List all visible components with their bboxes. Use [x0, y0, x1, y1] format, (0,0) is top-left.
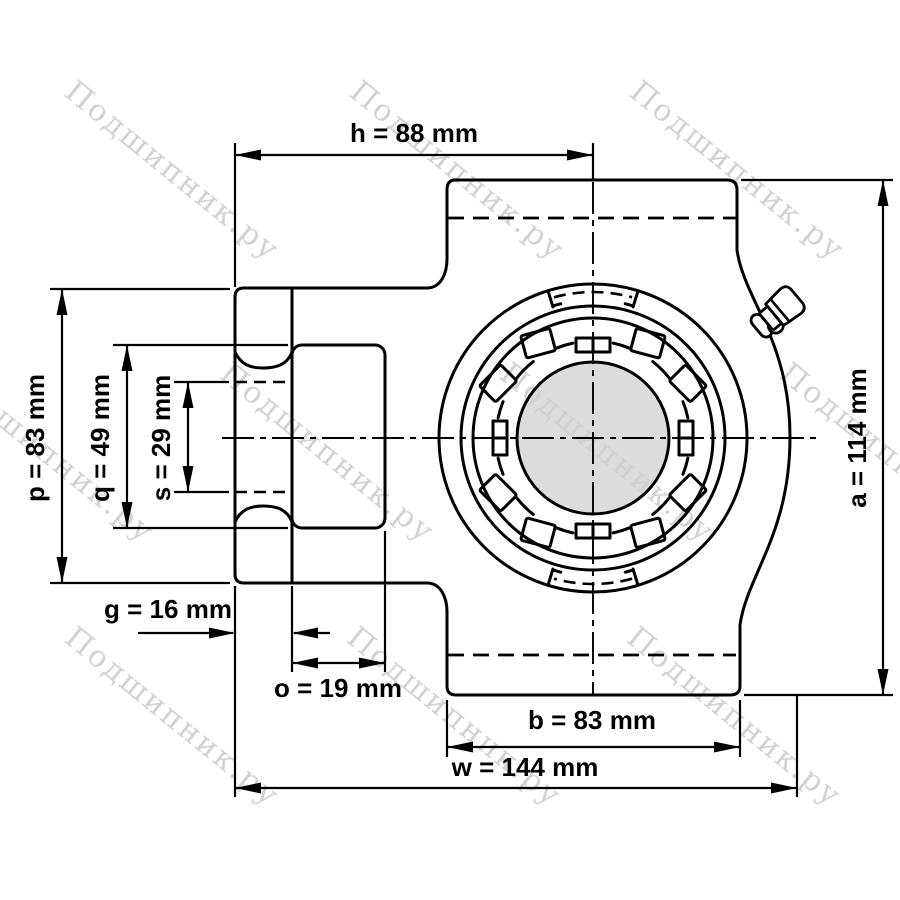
dimension-arrowhead	[122, 345, 133, 371]
arc-slot-end-step	[625, 570, 633, 572]
locknut-tab-rect	[630, 328, 665, 358]
locknut-tab-rect	[521, 518, 556, 548]
arc-slot-end-step	[553, 304, 561, 306]
dimension-arrowhead	[878, 669, 889, 695]
locknut-arc-segment	[613, 528, 629, 533]
arc-slot-end-wall	[633, 291, 638, 307]
dimension-label-w: w = 144 mm	[451, 752, 599, 782]
dimension-label-s: s = 29 mm	[146, 375, 176, 501]
arc-slot-end-wall	[548, 569, 553, 585]
locknut-arc-segment	[557, 343, 573, 348]
bearing-unit-drawing: Подшипник.руПодшипник.руПодшипник.руПодш…	[0, 0, 900, 900]
technical-drawing-page: Подшипник.руПодшипник.руПодшипник.руПодш…	[0, 0, 900, 900]
locknut-arc-segment	[613, 343, 629, 348]
locknut-arc-segment	[557, 528, 573, 533]
dimension-label-b: b = 83 mm	[528, 705, 656, 735]
dimension-arrowhead	[292, 658, 318, 669]
grease-fitting	[747, 284, 808, 342]
locknut-tab-rect	[521, 328, 556, 358]
dimension-label-o: o = 19 mm	[274, 673, 402, 703]
locknut-arc-segment	[683, 458, 688, 474]
dimension-label-g: g = 16 mm	[104, 594, 232, 624]
rail-slot-bottom	[235, 506, 292, 522]
locknut-tab-rect	[630, 518, 665, 548]
locknut-arc-segment	[653, 362, 670, 379]
locknut-arc-segment	[498, 458, 503, 474]
dimension-arrowhead	[292, 628, 318, 639]
dimension-arrowhead	[183, 382, 194, 408]
arc-slot-end-wall	[548, 291, 553, 307]
dimension-arrowhead	[57, 289, 68, 315]
dimension-label-h: h = 88 mm	[350, 118, 478, 148]
dimension-label-p: p = 83 mm	[20, 374, 50, 502]
dimension-arrowhead	[183, 466, 194, 492]
watermark-layer: Подшипник.руПодшипник.руПодшипник.руПодш…	[0, 74, 900, 814]
arc-slot-end-step	[625, 304, 633, 306]
locknut-arc-segment	[517, 498, 534, 515]
dimension-arrowhead	[714, 742, 740, 753]
watermark-text: Подшипник.ру	[58, 74, 287, 268]
dimension-arrowhead	[57, 557, 68, 583]
dimension-label-a: a = 114 mm	[842, 368, 872, 508]
watermark-text: Подшипник.ру	[773, 356, 900, 550]
dimension-arrowhead	[235, 150, 261, 161]
dimension-arrowhead	[878, 180, 889, 206]
dimension-label-q: q = 49 mm	[85, 374, 115, 502]
dimension-arrowhead	[567, 150, 593, 161]
locknut-arc-segment	[683, 402, 688, 418]
locknut-arc-segment	[498, 402, 503, 418]
watermark-text: Подшипник.ру	[343, 74, 572, 268]
watermark-text: Подшипник.ру	[213, 356, 442, 550]
arc-slot-end-step	[553, 570, 561, 572]
arc-slot-end-wall	[633, 569, 638, 585]
dimension-arrowhead	[209, 628, 235, 639]
